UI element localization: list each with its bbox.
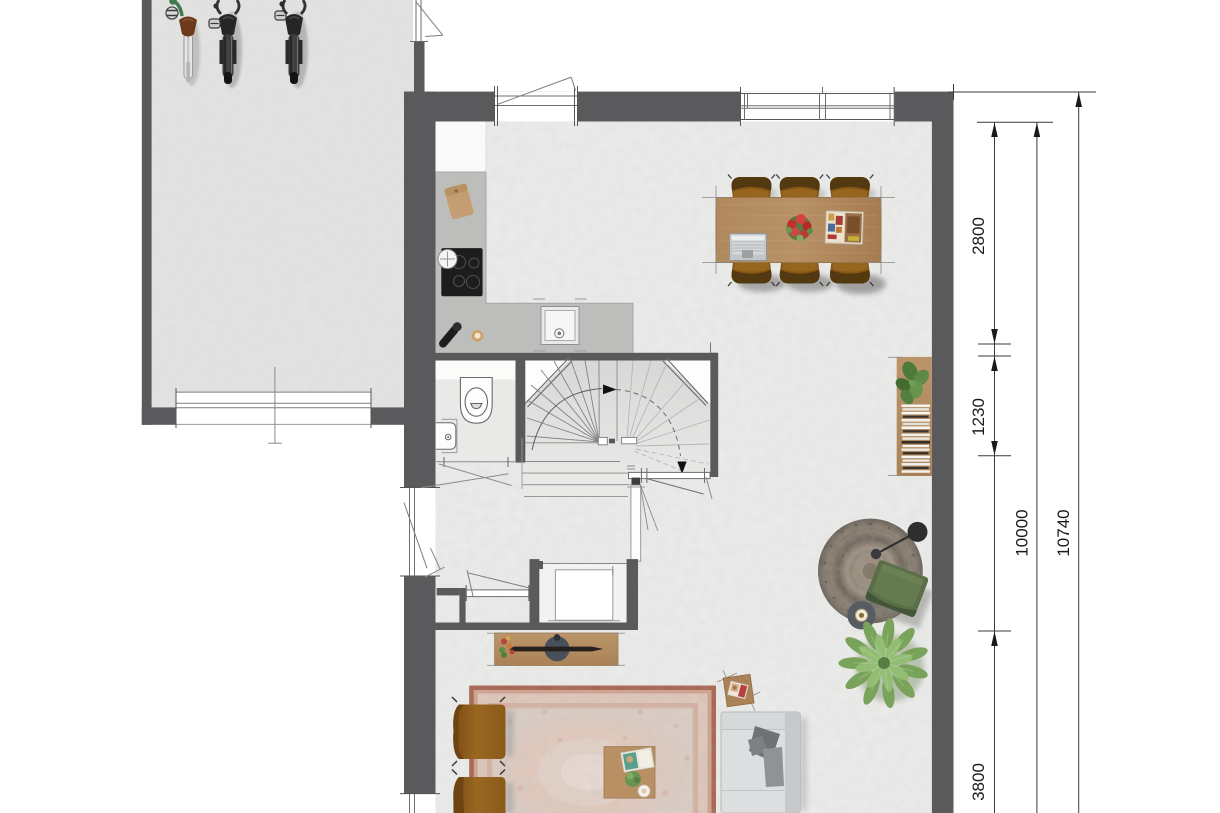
svg-text:1230: 1230 (969, 398, 988, 436)
svg-text:3800: 3800 (969, 763, 988, 801)
svg-text:2800: 2800 (969, 217, 988, 255)
svg-text:10000: 10000 (1012, 509, 1031, 556)
svg-text:10740: 10740 (1054, 509, 1073, 556)
